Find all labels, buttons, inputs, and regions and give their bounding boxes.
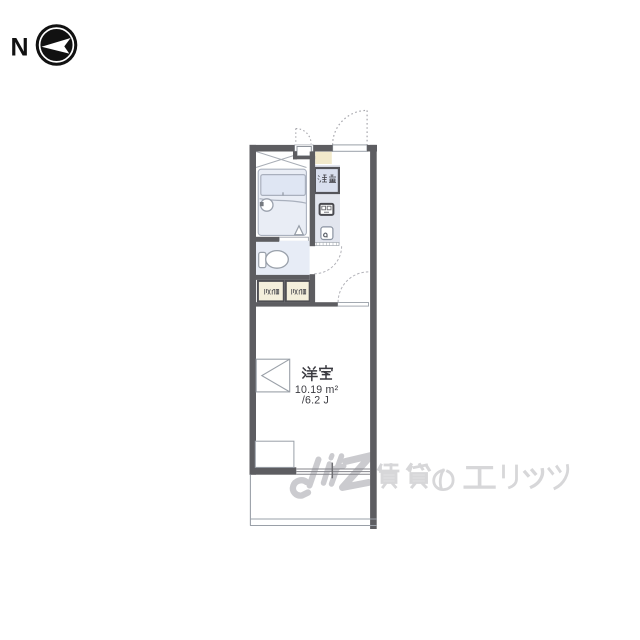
svg-text:N: N [11,34,29,62]
svg-text:/6.2 J: /6.2 J [302,395,329,407]
